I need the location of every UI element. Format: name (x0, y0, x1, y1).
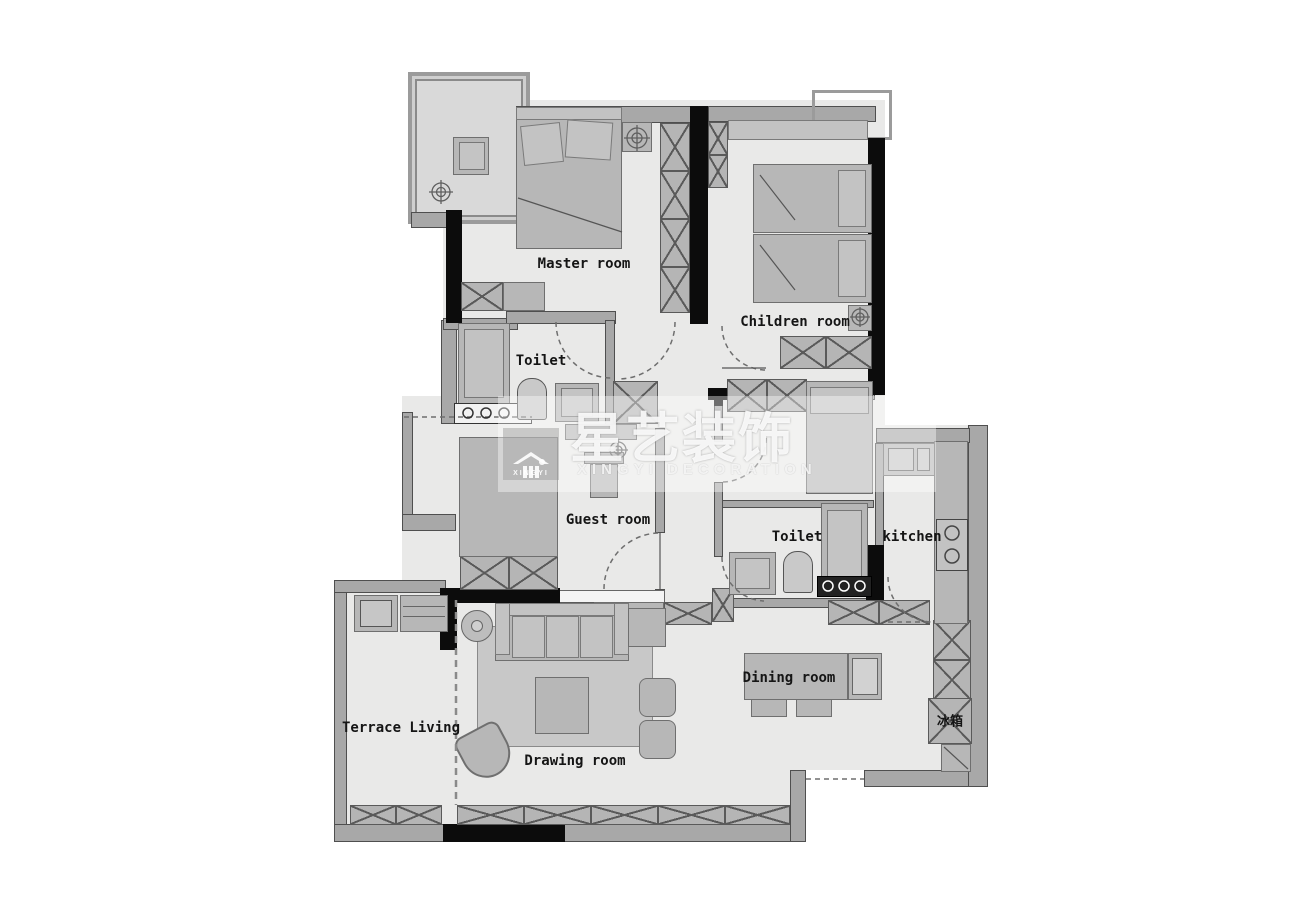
toilet-left-cabinet-inner (464, 329, 504, 398)
terrace-shelf-line (403, 616, 445, 617)
step-wall (790, 770, 806, 842)
children-nightstand (848, 305, 872, 331)
ottoman (639, 720, 676, 759)
side-table (628, 608, 666, 647)
coffee-table (535, 677, 589, 734)
sofa-back (495, 603, 629, 616)
floor-lamp-inner (471, 620, 483, 632)
room-label-children: Children room (740, 314, 850, 330)
children-wardrobe (826, 336, 872, 369)
terrace-washer-inner (360, 600, 392, 627)
terrace-shelf-line (403, 606, 445, 607)
children-curtain-box (728, 120, 868, 140)
master-bed-pillow (520, 122, 564, 166)
guest-wardrobe (509, 556, 558, 590)
watermark-brand-cn: 星艺装饰 (570, 412, 800, 466)
master-bed-pillow (565, 119, 614, 160)
toilet-right-wc (783, 551, 813, 593)
kitchen-tall-cabinet (933, 660, 971, 700)
window-sill-stub (411, 212, 449, 228)
terrace-window (396, 805, 442, 825)
bed3-left-wall-mid (714, 482, 723, 557)
toilet-right-basin-inner (735, 558, 770, 589)
room-label-toilet-right: Toilet (772, 529, 823, 545)
sofa-arm (495, 603, 510, 655)
master-bottom-wall (506, 311, 616, 324)
dining-chair (751, 699, 787, 717)
kitchen-tall-cabinet (933, 620, 971, 660)
toilet-right-knob-strip (817, 576, 872, 597)
dining-chair (796, 699, 832, 717)
alcove-left-wall (402, 412, 413, 519)
room-label-dining: Dining room (743, 670, 836, 686)
sofa-cushion (546, 616, 579, 658)
master-nightstand (622, 122, 652, 152)
terrace-shelf (400, 595, 448, 632)
watermark-logo-text: XINGYI (513, 470, 549, 477)
children-wardrobe (780, 336, 826, 369)
dining-top-cabinet (828, 600, 879, 625)
fridge-label: 冰箱 (937, 711, 963, 730)
room-label-master: Master room (538, 256, 631, 272)
terrace-top-wall (334, 580, 446, 593)
watermark-logo: XINGYI (503, 428, 559, 480)
master-closet (660, 171, 690, 219)
bottom-mid-wall (564, 824, 806, 842)
dining-top-cabinet (879, 600, 930, 625)
balcony-chair-seat (459, 142, 485, 170)
children-bed-1-pillow (838, 170, 866, 227)
sofa-cushion (512, 616, 545, 658)
master-closet (660, 123, 690, 171)
bottom-black-wall (443, 824, 565, 842)
sofa-cushion (580, 616, 613, 658)
room-label-guest: Guest room (566, 512, 650, 528)
room-label-drawing: Drawing room (524, 753, 625, 769)
tv-cabinet-x (664, 602, 712, 625)
bottom-right-wall (864, 770, 984, 787)
master-wardrobe (461, 282, 503, 311)
guest-bottom-black-h (440, 588, 560, 603)
kitchen-stove (936, 519, 968, 571)
master-bed-headboard (516, 107, 622, 120)
drawing-window (457, 805, 524, 825)
terrace-window (350, 805, 396, 825)
drawing-window (658, 805, 725, 825)
master-closet (660, 219, 690, 267)
drawing-window (725, 805, 790, 825)
master-wardrobe (503, 282, 545, 311)
room-label-terrace: Terrace Living (342, 720, 460, 736)
room-label-toilet-left: Toilet (516, 353, 567, 369)
drawing-window (524, 805, 591, 825)
drawing-window (591, 805, 658, 825)
ottoman (639, 678, 676, 717)
children-left-closet (708, 155, 728, 188)
children-bed-2-pillow (838, 240, 866, 297)
sofa-arm (614, 603, 629, 655)
center-black-wall (690, 106, 708, 324)
guest-wardrobe (460, 556, 509, 590)
watermark-brand-en: XINGYI DECORATION (577, 461, 817, 478)
toilet-right-shower-inner (827, 510, 862, 579)
dining-sideboard-inner (852, 658, 878, 695)
master-closet (660, 267, 690, 313)
kitchen-corner-unit (941, 744, 971, 772)
children-left-closet (708, 122, 728, 155)
master-left-black-wall (446, 210, 462, 323)
room-label-kitchen: kitchen (882, 529, 941, 545)
terrace-left-wall (334, 580, 347, 842)
alcove-jut-wall (402, 514, 456, 531)
floor-plan: Master room Children room Toilet Guest r… (0, 0, 1296, 902)
bottom-left-wall (334, 824, 444, 842)
